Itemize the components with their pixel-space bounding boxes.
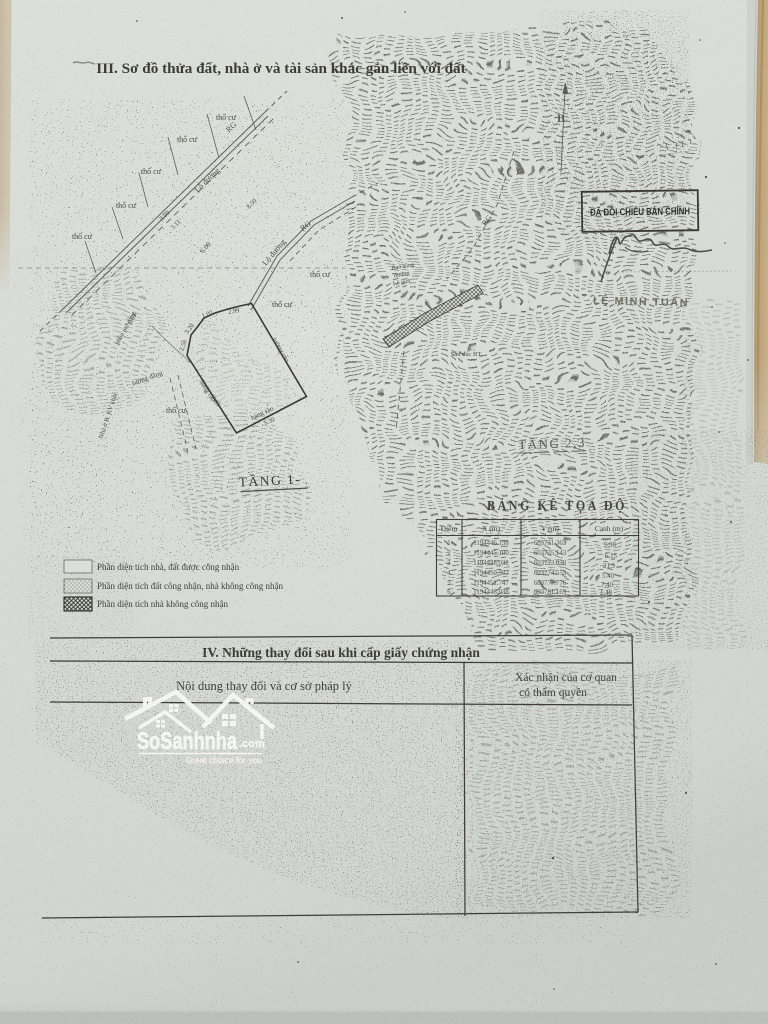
svg-text:thổ cư: thổ cư [166, 406, 187, 415]
svg-text:Xác nhận của cơ quan: Xác nhận của cơ quan [515, 672, 617, 684]
svg-text:Cạnh (m): Cạnh (m) [595, 524, 624, 533]
svg-text:7.40: 7.40 [601, 582, 613, 589]
svg-text:603781.169: 603781.169 [534, 589, 567, 596]
svg-text:BẢNG KÊ TỌA ĐỘ: BẢNG KÊ TỌA ĐỘ [487, 497, 627, 514]
svg-text:3: 3 [447, 560, 451, 567]
svg-text:Phần diện tích nhà không công: Phần diện tích nhà không công nhận [97, 599, 228, 609]
svg-text:21.9: 21.9 [603, 563, 615, 570]
svg-text:1194448.032: 1194448.032 [473, 560, 509, 567]
svg-text:có thẩm quyền: có thẩm quyền [519, 686, 587, 699]
svg-text:SoSanhnha: SoSanhnha [137, 728, 237, 755]
svg-text:thổ cư: thổ cư [116, 201, 137, 210]
svg-text:603735.143: 603735.143 [534, 550, 567, 557]
svg-text:Điểm: Điểm [441, 524, 458, 533]
svg-text:.com: .com [239, 738, 265, 750]
svg-text:Y (m): Y (m) [541, 524, 559, 533]
svg-text:2: 2 [447, 550, 451, 557]
svg-text:TẦNG 2,3: TẦNG 2,3 [518, 435, 586, 452]
svg-text:603774.555: 603774.555 [534, 570, 567, 577]
svg-text:1194445.100: 1194445.100 [473, 550, 509, 557]
svg-text:6.15: 6.15 [605, 553, 617, 560]
svg-text:thổ cư: thổ cư [216, 113, 237, 122]
svg-text:603773.038: 603773.038 [534, 560, 567, 567]
svg-text:LÊ MINH TUẤN: LÊ MINH TUẤN [593, 294, 689, 310]
svg-text:1194446.138: 1194446.138 [473, 540, 509, 547]
svg-text:1194451.747: 1194451.747 [473, 580, 509, 587]
svg-text:B: B [557, 113, 565, 125]
svg-text:603777.776: 603777.776 [534, 580, 567, 587]
svg-text:Phần diện tích nhà, đất được c: Phần diện tích nhà, đất được công nhận [97, 562, 240, 572]
svg-text:Phần diện tích đất công nhận,: Phần diện tích đất công nhận, nhà không … [97, 581, 283, 591]
svg-text:5: 5 [447, 580, 451, 587]
svg-text:1.40: 1.40 [600, 590, 612, 597]
svg-text:603731.363: 603731.363 [534, 540, 567, 547]
svg-text:X (m): X (m) [482, 524, 501, 533]
svg-text:thổ cư: thổ cư [310, 270, 331, 279]
svg-text:1: 1 [447, 540, 450, 547]
svg-text:Great choice for you: Great choice for you [185, 755, 262, 765]
svg-text:4: 4 [447, 570, 451, 577]
svg-text:6: 6 [447, 589, 451, 596]
svg-text:thổ cư: thổ cư [141, 167, 162, 176]
svg-text:thổ cư: thổ cư [72, 232, 93, 241]
svg-text:Sân đúc BT: Sân đúc BT [451, 351, 482, 358]
svg-text:III. Sơ đồ thửa đất, nhà ở và: III. Sơ đồ thửa đất, nhà ở và tài sản kh… [96, 60, 465, 77]
svg-text:IV. Những thay đổi sau khi cấp: IV. Những thay đổi sau khi cấp giấy chứn… [202, 645, 480, 660]
svg-text:1194446.038: 1194446.038 [473, 589, 509, 596]
svg-text:5.40: 5.40 [602, 573, 614, 580]
svg-text:thổ cư: thổ cư [272, 300, 293, 309]
svg-text:Nội dung thay đổi và cơ sở phá: Nội dung thay đổi và cơ sở pháp lý [176, 679, 352, 693]
svg-text:5.98: 5.98 [604, 542, 616, 549]
svg-text:1194450.382: 1194450.382 [473, 570, 509, 577]
svg-text:thổ cư: thổ cư [177, 135, 198, 144]
